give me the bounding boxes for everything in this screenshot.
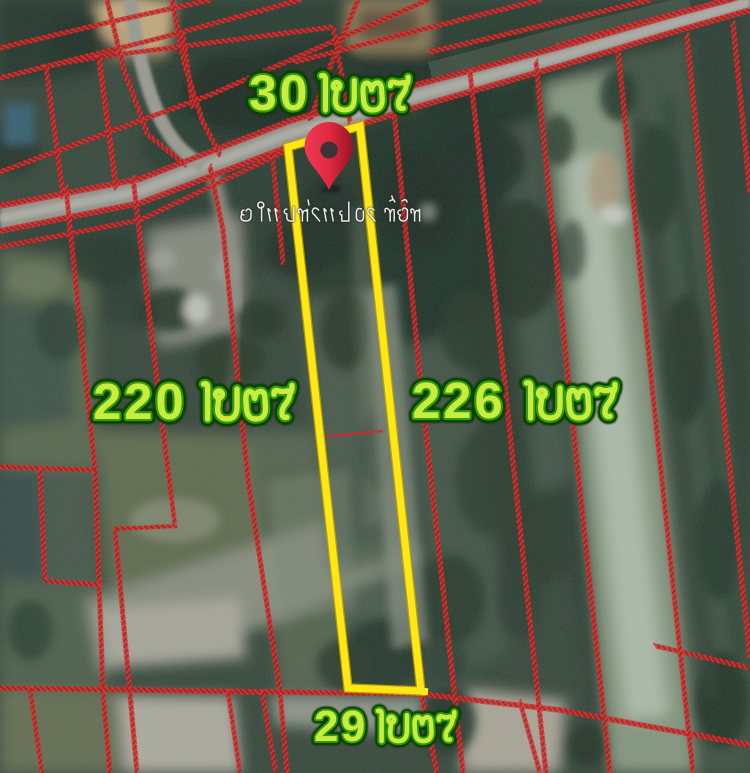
svg-text:30: 30 [249, 65, 310, 121]
svg-text:29: 29 [314, 702, 368, 751]
svg-text:226: 226 [412, 372, 506, 429]
svg-text:220: 220 [93, 373, 187, 430]
